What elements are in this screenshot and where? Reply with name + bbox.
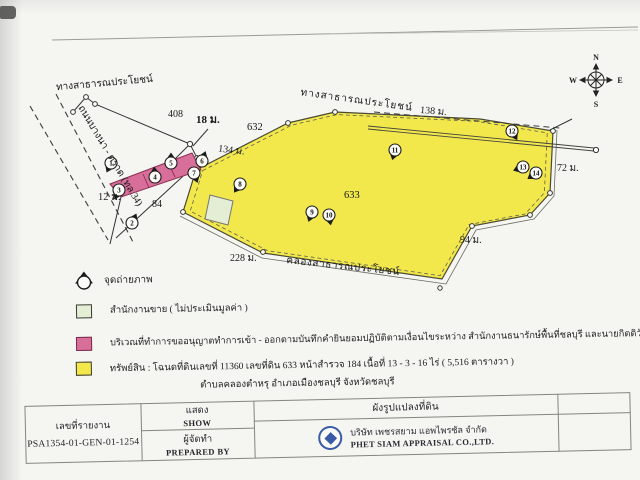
company-cell: บริษัท เพชรสยาม แอพไพรซัล จำกัด PHET SIA…: [254, 414, 559, 459]
drawing-title: ผังรูปแปลงที่ดิน: [372, 399, 439, 415]
prepared-by-cell: ผู้จัดทำ PREPARED BY: [141, 428, 255, 462]
legend-item-office: สำนักงานขาย ( ไม่ประเมินมูลค่า ): [76, 301, 248, 319]
company-name-en: PHET SIAM APPRAISAL CO.,LTD.: [351, 436, 495, 449]
label-dim-84: 84: [152, 200, 162, 211]
photo-point-icon: [72, 270, 98, 290]
sales-office-square: [205, 195, 233, 225]
prepared-by-label-th: ผู้จัดทำ: [183, 432, 212, 448]
report-no-cell: เลขที่รายงาน PSA1354-01-GEN-01-1254: [24, 403, 141, 464]
label-parcel-632: 632: [247, 122, 263, 133]
report-no-label: เลขที่รายงาน: [56, 418, 111, 434]
dim-leader-line: [193, 129, 208, 146]
marker-number: 13: [520, 164, 528, 172]
label-dim-94m: 94 ม.: [460, 236, 482, 247]
label-dim-72m: 72 ม.: [557, 164, 579, 175]
label-dim-18m: 18 ม.: [196, 115, 220, 127]
label-dim-228m: 228 ม.: [230, 254, 257, 265]
company-names: บริษัท เพชรสยาม แอพไพรซัล จำกัด PHET SIA…: [350, 422, 494, 449]
compass-n-label: N: [593, 53, 599, 62]
marker-number: 6: [200, 158, 204, 166]
marker-number: 5: [169, 160, 173, 168]
logo-diamond-shape: [324, 432, 337, 445]
legend-item-photo-point: จุดถ่ายภาพ: [72, 269, 153, 290]
legend-office-label: สำนักงานขาย ( ไม่ประเมินมูลค่า ): [110, 301, 248, 318]
marker-number: 2: [130, 220, 134, 228]
label-dim-138m: 138 ม.: [420, 106, 447, 119]
label-parcel-633: 633: [344, 190, 360, 201]
marker-number: 8: [238, 181, 242, 189]
property-swatch: [76, 362, 92, 376]
compass-w-label: W: [569, 76, 577, 85]
report-no-value: PSA1354-01-GEN-01-1254: [27, 436, 139, 450]
legend-property-text: ทรัพย์สิน : โฉนดที่ดินเลขที่ 11360 เลขที…: [110, 354, 515, 394]
scanned-survey-page: N E S W 1234567891011121314 ทางสาธารณประ…: [0, 0, 640, 480]
marker-number: 9: [310, 209, 314, 217]
label-dim-12m: 12 ม.: [98, 192, 121, 203]
access-swatch: [76, 336, 92, 350]
label-dim-408: 408: [168, 110, 183, 121]
marker-number: 11: [392, 147, 399, 155]
company-logo-icon: [318, 426, 343, 451]
marker-number: 12: [509, 128, 517, 136]
photo-point-marker: 2: [126, 211, 141, 229]
compass: N E S W: [569, 53, 623, 109]
prepared-by-label-en: PREPARED BY: [166, 446, 230, 457]
compass-s-label: S: [594, 100, 599, 109]
office-swatch: [76, 304, 92, 318]
show-label-th: แสดง: [186, 403, 209, 419]
marker-number: 14: [533, 170, 541, 178]
photo-point-marker: 5: [165, 153, 177, 170]
access-track-end-node: [593, 147, 598, 152]
legend-photo-point-label: จุดถ่ายภาพ: [104, 272, 153, 288]
show-cell: แสดง SHOW: [140, 401, 254, 431]
show-label-en: SHOW: [183, 418, 211, 429]
marker-number: 7: [192, 170, 196, 178]
marker-number: 4: [153, 174, 157, 182]
compass-e-label: E: [617, 76, 622, 85]
marker-number: 10: [326, 212, 334, 220]
